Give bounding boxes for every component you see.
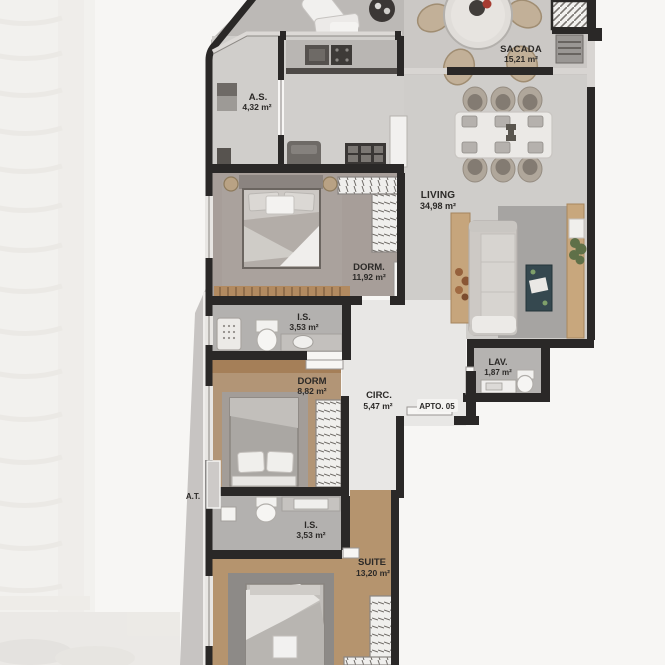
svg-text:CIRC.: CIRC. xyxy=(366,390,392,401)
svg-text:13,20 m²: 13,20 m² xyxy=(356,568,390,578)
svg-text:5,47 m²: 5,47 m² xyxy=(363,401,392,411)
svg-text:3,53 m²: 3,53 m² xyxy=(296,530,325,540)
svg-text:1,87 m²: 1,87 m² xyxy=(484,368,512,377)
svg-text:I.S.: I.S. xyxy=(304,520,318,530)
svg-text:3,53 m²: 3,53 m² xyxy=(289,322,318,332)
svg-text:4,32 m²: 4,32 m² xyxy=(242,102,271,112)
svg-text:SUITE: SUITE xyxy=(358,557,386,568)
svg-text:34,98 m²: 34,98 m² xyxy=(420,201,456,211)
svg-text:LAV.: LAV. xyxy=(488,357,507,367)
svg-text:8,82 m²: 8,82 m² xyxy=(297,386,326,396)
svg-text:11,92 m²: 11,92 m² xyxy=(352,272,386,282)
svg-text:APTO. 05: APTO. 05 xyxy=(419,402,455,411)
svg-text:I.S.: I.S. xyxy=(297,312,311,322)
svg-text:A.T.: A.T. xyxy=(186,492,200,501)
svg-text:LIVING: LIVING xyxy=(421,190,456,201)
svg-text:15,21 m²: 15,21 m² xyxy=(504,54,538,64)
